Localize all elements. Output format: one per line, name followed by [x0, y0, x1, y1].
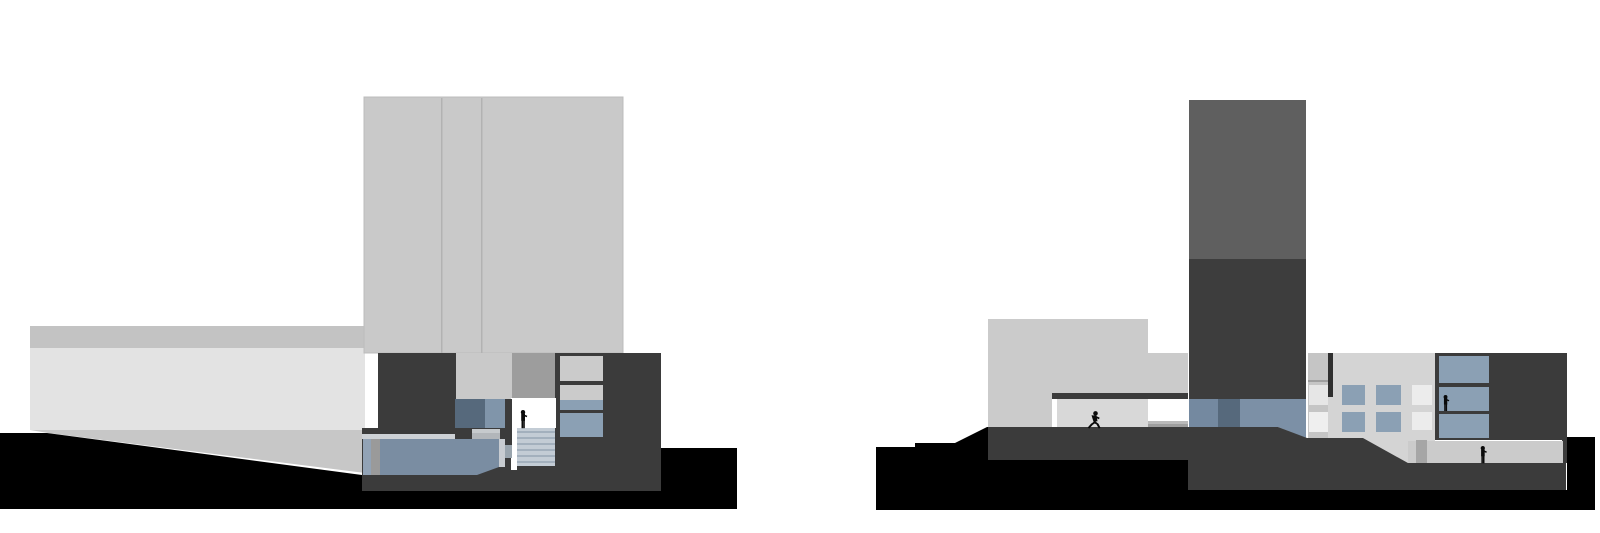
right-lowrise-upper [988, 319, 1148, 353]
right-tower-base-glazing-panel-2 [1218, 399, 1240, 427]
right-lowrise-interior [1057, 399, 1148, 428]
left-mullion-base [505, 445, 512, 458]
right-interior-band-seam [1308, 380, 1328, 382]
sections-drawing [0, 0, 1600, 533]
right-tower-lower [1189, 259, 1306, 399]
panel-white [1309, 385, 1328, 405]
left-tower [364, 97, 623, 353]
right-lowrise-sill-upper [1148, 421, 1188, 424]
left-window-stack [560, 356, 603, 437]
left-lowrise-roof-band [30, 326, 365, 348]
left-window-1 [560, 356, 603, 381]
left-mullion [505, 399, 512, 445]
left-lowrise-facade [30, 348, 365, 430]
panel-white [1412, 385, 1432, 405]
right-interior-wall [1328, 353, 1333, 397]
panel-white [1309, 412, 1328, 432]
right-walkway-pillar [1416, 440, 1427, 463]
right-canopy [1052, 393, 1188, 399]
right-tower-upper [1189, 100, 1306, 259]
right-tower-base-glazing-panel-1 [1189, 399, 1218, 427]
panel-white [1412, 412, 1432, 430]
left-stair-shaft-head [512, 353, 555, 398]
left-tower-seam-2 [481, 98, 483, 353]
left-base-block-west [378, 353, 456, 436]
window-square [1342, 385, 1365, 405]
left-tower-lower-wall [455, 353, 512, 399]
right-lowrise-slit [1052, 399, 1057, 428]
pool-steps-top [472, 429, 500, 433]
left-window-3 [560, 413, 603, 437]
right-window-1 [1439, 356, 1489, 383]
pool-steps-front [472, 433, 500, 439]
left-window-2-lower [560, 400, 603, 410]
left-stairs [517, 428, 555, 466]
architectural-sections-canvas [0, 0, 1600, 533]
pool-coping [499, 439, 505, 467]
window-square [1376, 412, 1401, 432]
left-glazing-dark [455, 399, 485, 428]
pool-water [380, 439, 499, 475]
pool-deck [362, 434, 455, 439]
window-square [1342, 412, 1365, 432]
left-glazing-light [485, 399, 505, 428]
window-square [1376, 385, 1401, 405]
left-tower-seam-1 [441, 98, 443, 353]
right-window-3 [1439, 414, 1489, 438]
pool-wall-strip [371, 439, 380, 475]
pool-edge-strip [363, 439, 371, 475]
left-window-2-upper [560, 385, 603, 400]
right-lowrise-opening [1148, 399, 1188, 421]
